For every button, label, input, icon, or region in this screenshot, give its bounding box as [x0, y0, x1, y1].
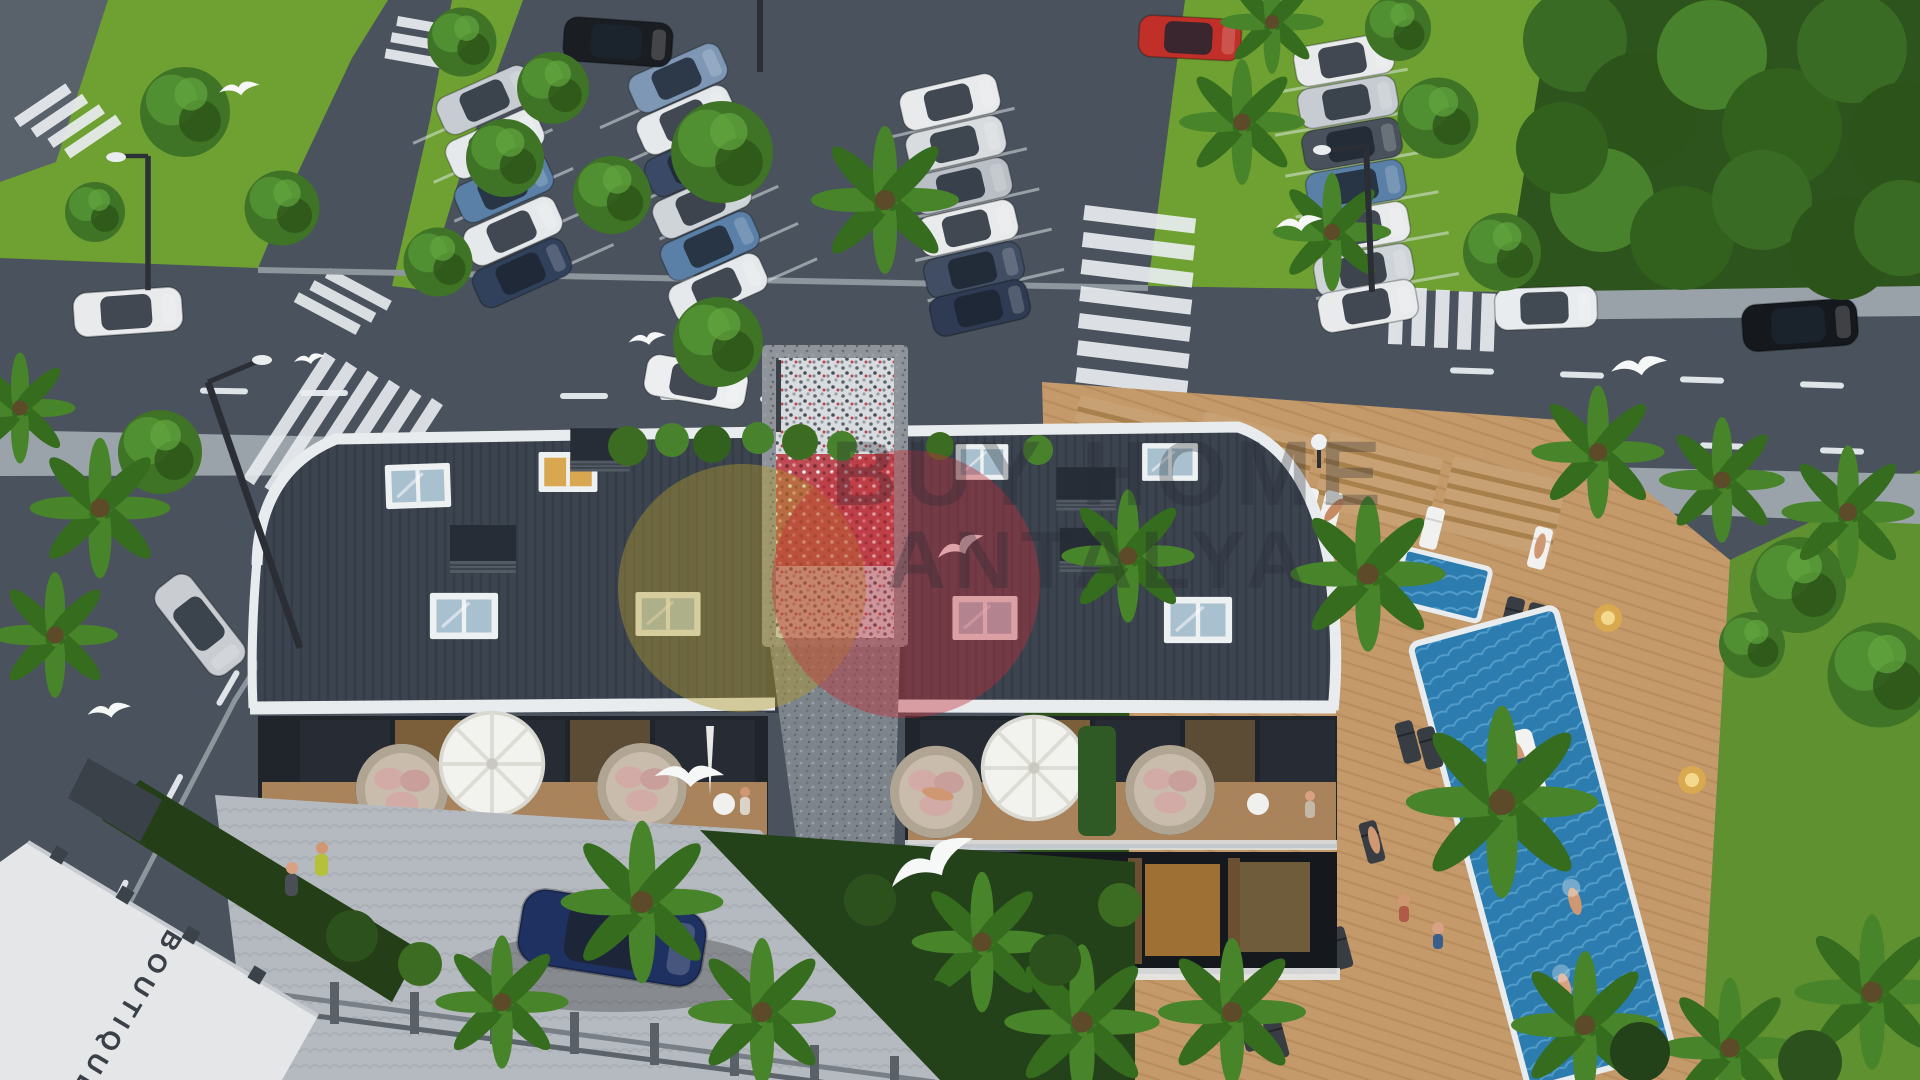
tree: [517, 52, 589, 124]
sign-pole: [776, 360, 781, 432]
palm-tree: [1531, 385, 1664, 518]
tree: [1719, 612, 1785, 678]
patio-umbrella: [983, 717, 1086, 820]
terrace-person: [1305, 791, 1315, 801]
round-daybed: [597, 743, 687, 833]
palm-tree: [1781, 445, 1914, 578]
tree: [404, 228, 473, 297]
eave-fascia-right: [898, 706, 1336, 707]
watermark-line1: BUY HOME: [831, 423, 1389, 525]
white-car-right: [1494, 285, 1598, 330]
roof-vent: [450, 525, 516, 573]
tree: [65, 182, 125, 242]
skylight: [385, 463, 452, 509]
black-car-top: [562, 16, 674, 68]
roof-edge-left: [252, 560, 257, 708]
tree: [1463, 213, 1541, 291]
person-deck: [1398, 894, 1410, 906]
palm-tree: [1179, 59, 1305, 185]
render-canvas: BOUTIQUE: [0, 0, 1920, 1080]
person-deck: [1432, 922, 1444, 934]
palm-tree: [688, 938, 836, 1080]
palm-tree: [1659, 417, 1785, 543]
tree: [140, 67, 230, 157]
palm-tree: [1158, 938, 1306, 1080]
tree: [671, 101, 773, 203]
terrace-table: [1247, 793, 1269, 815]
palm-tree: [435, 935, 568, 1068]
tree: [245, 171, 320, 246]
hedge-planter: [1078, 726, 1116, 836]
aerial-render-scene: BOUTIQUE: [0, 0, 1920, 1080]
terrace-right-railing: [905, 840, 1337, 850]
round-daybed: [1125, 745, 1215, 835]
patio-umbrella: [441, 713, 544, 816]
tree: [1398, 78, 1479, 159]
terrace-person: [740, 787, 750, 797]
tree: [673, 297, 763, 387]
white-suv-top-left: [72, 286, 184, 338]
palm-tree: [1406, 706, 1598, 898]
watermark-line2: ANTALYA: [887, 515, 1314, 606]
tree: [466, 119, 544, 197]
eave-fascia-left: [250, 704, 775, 708]
terrace-table: [713, 793, 735, 815]
palm-tree: [561, 821, 724, 984]
palm-tree: [30, 438, 171, 579]
tree: [573, 156, 651, 234]
skylight: [430, 593, 498, 639]
palm-tree: [811, 126, 959, 274]
black-suv-right: [1741, 298, 1859, 353]
tree: [428, 8, 497, 77]
pole-top-center: [757, 0, 763, 72]
